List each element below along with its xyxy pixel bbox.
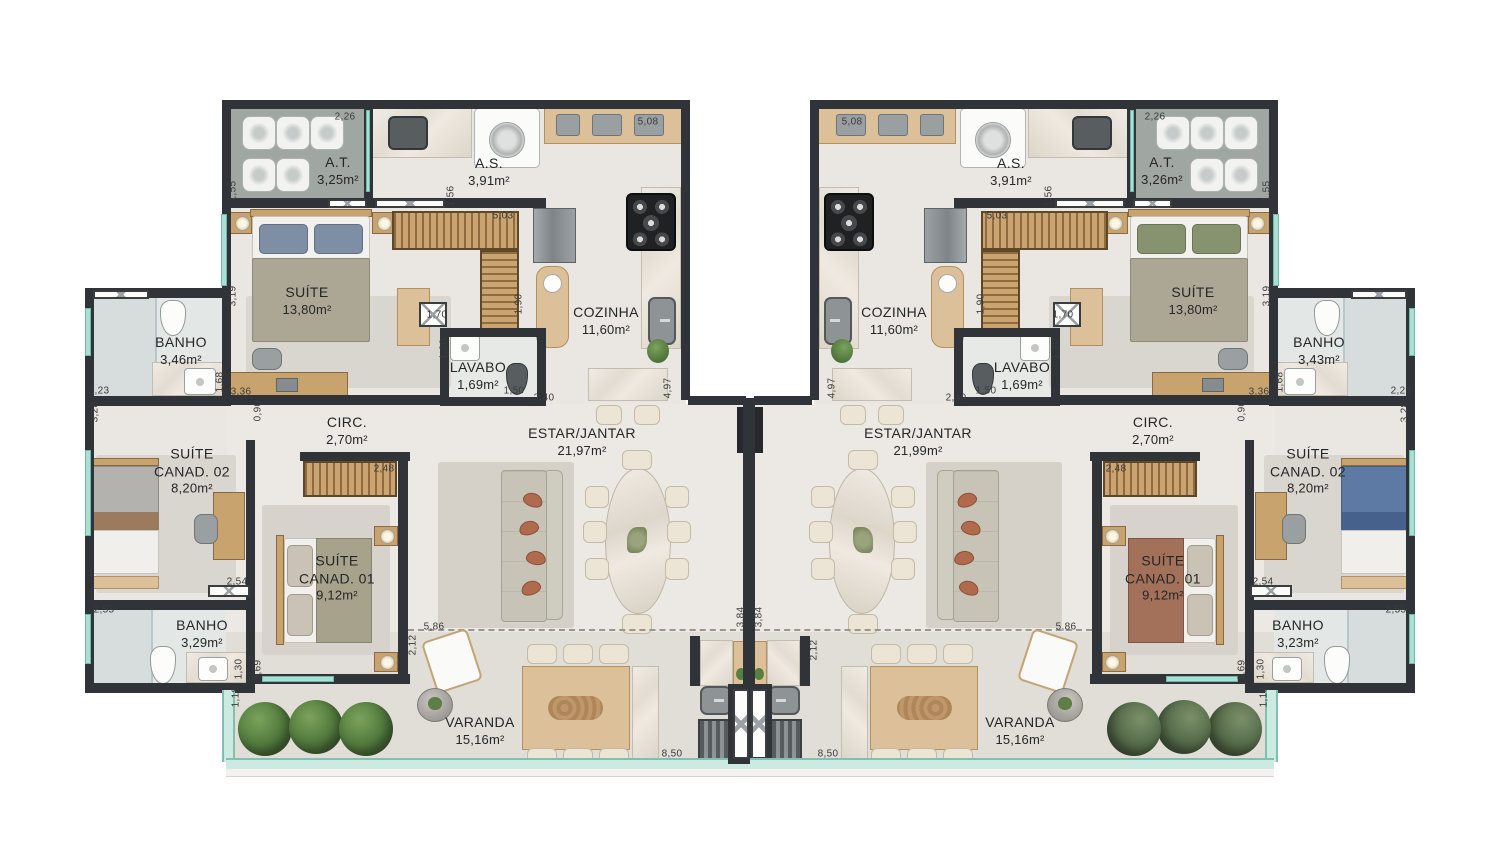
room-label-left-lavabo: LAVABO1,69m² — [450, 359, 506, 393]
room-name: BANHO — [1293, 334, 1345, 352]
dimension-label: 2,26 — [1145, 112, 1166, 123]
room-label-right-circ: CIRC.2,70m² — [1132, 414, 1174, 448]
dimension-label: 1,90 — [976, 294, 987, 315]
room-name: VARANDA — [445, 714, 514, 732]
room-area: 8,20m² — [1270, 480, 1346, 496]
dimension-label: 1,20 — [1051, 339, 1062, 360]
room-name: CIRC. — [1132, 414, 1174, 432]
dimension-label: 1,70 — [427, 310, 448, 321]
room-name: A.S. — [990, 155, 1032, 173]
dimension-label: 2,12 — [408, 635, 419, 656]
dimension-label: 3,28 — [90, 402, 101, 423]
room-area: 15,16m² — [985, 732, 1054, 748]
dimension-label: 3,36 — [231, 387, 252, 398]
room-label-left-at: A.T.3,25m² — [317, 154, 359, 188]
room-label-right-estar-jantar: ESTAR/JANTAR21,99m² — [864, 425, 972, 459]
room-name: ESTAR/JANTAR — [528, 425, 636, 443]
dimension-label: 2,48 — [374, 464, 395, 475]
room-name: SUÍTE CANAD. 02 — [1270, 445, 1346, 480]
room-name: BANHO — [176, 617, 228, 635]
room-label-left-suite-canad-01: SUÍTE CANAD. 019,12m² — [299, 552, 375, 603]
room-label-right-lavabo: LAVABO1,69m² — [994, 359, 1050, 393]
room-name: COZINHA — [861, 304, 927, 322]
dimension-label: 2,54 — [1253, 577, 1274, 588]
room-area: 11,60m² — [573, 322, 639, 338]
dimension-label: 0,90 — [253, 401, 264, 422]
room-area: 9,12m² — [1125, 587, 1201, 603]
dimension-label: 1,30 — [234, 659, 245, 680]
dimension-label: 3,19 — [228, 286, 239, 307]
room-area: 2,70m² — [326, 432, 368, 448]
room-label-right-at: A.T.3,26m² — [1141, 154, 1183, 188]
dimension-label: 1,18 — [231, 687, 242, 708]
dimension-label: 3,36 — [1249, 387, 1270, 398]
room-name: VARANDA — [985, 714, 1054, 732]
room-label-right-cozinha: COZINHA11,60m² — [861, 304, 927, 338]
dimension-label: 1,55 — [1262, 181, 1273, 202]
room-area: 3,29m² — [176, 635, 228, 651]
dimension-label: 1,56 — [446, 186, 457, 207]
room-area: 21,99m² — [864, 443, 972, 459]
dimension-label: 5,86 — [1056, 622, 1077, 633]
dimension-label: 5,08 — [842, 117, 863, 128]
dimension-label: 1,30 — [1256, 659, 1267, 680]
room-area: 1,69m² — [994, 377, 1050, 393]
room-label-left-circ: CIRC.2,70m² — [326, 414, 368, 448]
dimension-label: 1,20 — [439, 339, 450, 360]
room-label-right-varanda: VARANDA15,16m² — [985, 714, 1054, 748]
room-label-left-varanda: VARANDA15,16m² — [445, 714, 514, 748]
room-name: SUÍTE CANAD. 01 — [299, 552, 375, 587]
room-area: 3,91m² — [468, 173, 510, 189]
room-label-left-banho-canad: BANHO3,29m² — [176, 617, 228, 651]
dimension-label: 2,55 — [1386, 605, 1407, 616]
dimension-label: 2,26 — [335, 112, 356, 123]
dimension-label: 3,84 — [754, 607, 765, 628]
dimension-label: 5,86 — [424, 622, 445, 633]
room-name: A.T. — [317, 154, 359, 172]
room-area: 3,91m² — [990, 173, 1032, 189]
dimension-label: 3,84 — [736, 607, 747, 628]
room-label-right-suite-canad-01: SUÍTE CANAD. 019,12m² — [1125, 552, 1201, 603]
room-area: 3,26m² — [1141, 172, 1183, 188]
dimension-label: 1,50 — [504, 386, 525, 397]
labels-layer: 2,262,265,085,081,551,551,561,563,193,19… — [0, 0, 1500, 843]
room-area: 8,20m² — [154, 480, 230, 496]
room-name: COZINHA — [573, 304, 639, 322]
room-name: LAVABO — [450, 359, 506, 377]
dimension-label: 4,97 — [663, 378, 674, 399]
dimension-label: 5,03 — [987, 211, 1008, 222]
room-label-right-banho-canad: BANHO3,23m² — [1272, 617, 1324, 651]
dimension-label: 3,69 — [253, 660, 264, 681]
room-area: 9,12m² — [299, 587, 375, 603]
room-name: A.T. — [1141, 154, 1183, 172]
room-name: BANHO — [1272, 617, 1324, 635]
room-area: 3,43m² — [1293, 352, 1345, 368]
dimension-label: 1,68 — [1275, 372, 1286, 393]
room-label-left-as: A.S.3,91m² — [468, 155, 510, 189]
room-label-right-suite: SUÍTE13,80m² — [1168, 284, 1217, 318]
dimension-label: 2,48 — [1106, 464, 1127, 475]
room-label-left-cozinha: COZINHA11,60m² — [573, 304, 639, 338]
room-label-left-suite-canad-02: SUÍTE CANAD. 028,20m² — [154, 445, 230, 496]
room-name: LAVABO — [994, 359, 1050, 377]
room-label-left-banho-suite: BANHO3,46m² — [155, 334, 207, 368]
dimension-label: 2,40 — [946, 393, 967, 404]
room-label-left-estar-jantar: ESTAR/JANTAR21,97m² — [528, 425, 636, 459]
dimension-label: 2,23 — [89, 386, 110, 397]
dimension-label: 8,50 — [662, 749, 683, 760]
room-label-right-banho-suite: BANHO3,43m² — [1293, 334, 1345, 368]
room-area: 3,46m² — [155, 352, 207, 368]
room-label-right-as: A.S.3,91m² — [990, 155, 1032, 189]
dimension-label: 1,90 — [514, 294, 525, 315]
room-name: A.S. — [468, 155, 510, 173]
dimension-label: 2,54 — [227, 577, 248, 588]
room-area: 2,70m² — [1132, 432, 1174, 448]
dimension-label: 0,90 — [1237, 401, 1248, 422]
room-name: SUÍTE CANAD. 02 — [154, 445, 230, 480]
room-label-left-suite: SUÍTE13,80m² — [282, 284, 331, 318]
room-area: 13,80m² — [1168, 302, 1217, 318]
dimension-label: 1,68 — [215, 372, 226, 393]
room-area: 11,60m² — [861, 322, 927, 338]
room-name: SUÍTE — [282, 284, 331, 302]
room-area: 3,23m² — [1272, 635, 1324, 651]
dimension-label: 5,03 — [493, 211, 514, 222]
dimension-label: 1,55 — [228, 181, 239, 202]
dimension-label: 5,08 — [638, 117, 659, 128]
room-area: 15,16m² — [445, 732, 514, 748]
dimension-label: 4,97 — [827, 378, 838, 399]
dimension-label: 8,50 — [818, 749, 839, 760]
room-name: SUÍTE CANAD. 01 — [1125, 552, 1201, 587]
dimension-label: 3,69 — [1237, 660, 1248, 681]
room-name: ESTAR/JANTAR — [864, 425, 972, 443]
room-name: BANHO — [155, 334, 207, 352]
room-area: 3,25m² — [317, 172, 359, 188]
dimension-label: 3,19 — [1262, 286, 1273, 307]
room-area: 13,80m² — [282, 302, 331, 318]
dimension-label: 2,23 — [1391, 386, 1412, 397]
room-area: 21,97m² — [528, 443, 636, 459]
dimension-label: 1,70 — [1053, 310, 1074, 321]
dimension-label: 3,28 — [1400, 402, 1411, 423]
room-name: SUÍTE — [1168, 284, 1217, 302]
dimension-label: 2,12 — [809, 640, 820, 661]
dimension-label: 2,55 — [94, 605, 115, 616]
dimension-label: 1,18 — [1259, 687, 1270, 708]
floor-plan: 2,262,265,085,081,551,551,561,563,193,19… — [0, 0, 1500, 843]
room-label-right-suite-canad-02: SUÍTE CANAD. 028,20m² — [1270, 445, 1346, 496]
dimension-label: 1,56 — [1044, 186, 1055, 207]
room-area: 1,69m² — [450, 377, 506, 393]
dimension-label: 2,40 — [534, 393, 555, 404]
room-name: CIRC. — [326, 414, 368, 432]
